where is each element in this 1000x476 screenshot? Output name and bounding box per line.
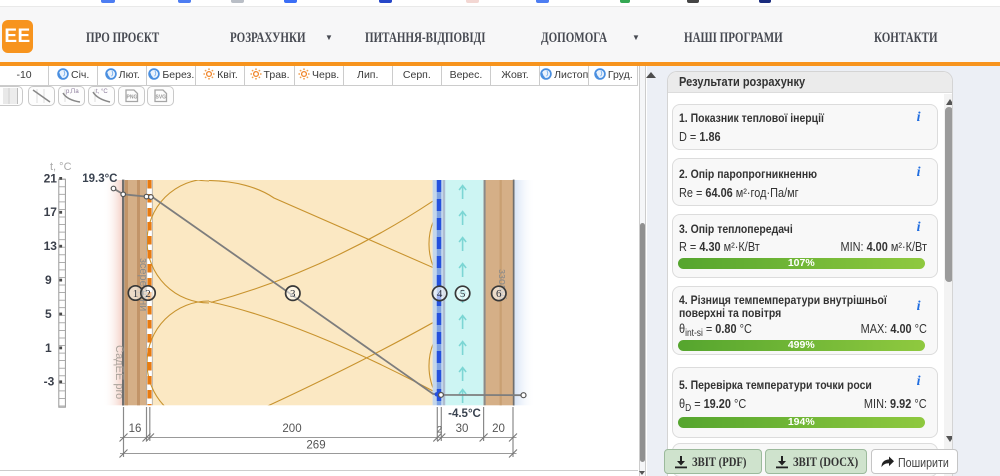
svg-text:SVG: SVG [156,95,167,101]
svg-text:13: 13 [44,239,58,253]
svg-text:2: 2 [145,288,151,300]
svg-text:20: 20 [492,423,505,435]
svg-text:5: 5 [460,288,466,300]
svg-text:19.3°C: 19.3°C [82,173,117,185]
svg-text:4: 4 [437,288,443,300]
svg-text:30: 30 [456,423,469,435]
svg-text:СадЕЕ pro: СадЕЕ pro [113,345,125,399]
svg-text:21: 21 [44,171,58,185]
svg-text:p,Па: p,Па [66,89,79,95]
svg-text:5: 5 [45,307,52,321]
svg-text:1: 1 [45,341,52,355]
svg-text:17: 17 [44,205,58,219]
svg-text:3: 3 [290,288,296,300]
svg-text:t, °C: t, °C [96,89,108,95]
svg-text:269: 269 [306,440,325,452]
svg-text:2: 2 [437,425,442,435]
svg-text:-3: -3 [44,375,55,389]
svg-text:9: 9 [45,273,52,287]
svg-text:200: 200 [282,423,301,435]
svg-text:6: 6 [496,288,502,300]
svg-text:1: 1 [133,288,139,300]
svg-text:PNG: PNG [127,95,138,101]
svg-text:зсередини: зсередини [137,258,149,311]
svg-text:-4.5°C: -4.5°C [448,408,481,420]
svg-text:16: 16 [129,423,142,435]
